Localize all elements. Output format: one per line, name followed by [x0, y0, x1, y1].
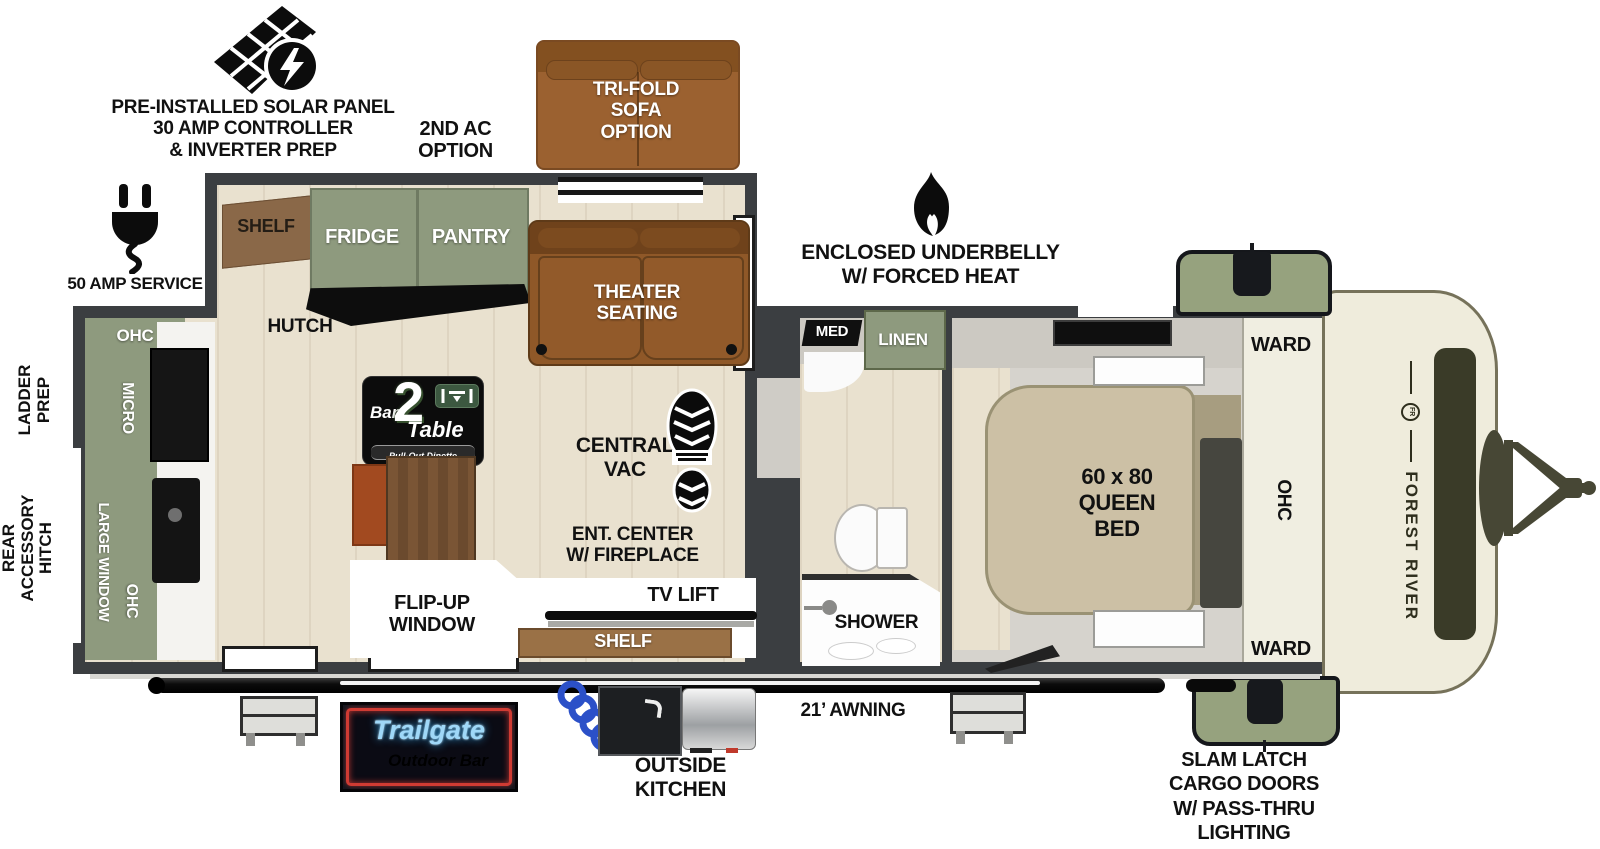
outside-kitchen-tank — [682, 688, 756, 750]
dinette-table — [386, 456, 476, 566]
pantry-label: PANTRY — [417, 226, 525, 248]
bar2table-table: Table — [407, 417, 464, 443]
awning-label: 21’ AWNING — [788, 700, 918, 721]
rear-hitch-line3: HITCH — [37, 473, 56, 623]
bed-line3: BED — [1037, 516, 1197, 542]
theater-label: THEATER SEATING — [528, 282, 746, 325]
trailgate-logo: Trailgate Outdoor Bar — [340, 702, 518, 792]
slam-latch-line2: CARGO DOORS — [1153, 772, 1335, 796]
solar-callout: PRE-INSTALLED SOLAR PANEL 30 AMP CONTROL… — [88, 97, 418, 161]
tv-lift-label: TV LIFT — [628, 584, 738, 606]
ward-bottom-label: WARD — [1248, 638, 1314, 660]
front-brand-label: FOREST RIVER — [1402, 471, 1421, 621]
trailgate-name: Trailgate — [343, 715, 515, 746]
flame-icon — [906, 170, 956, 238]
linen-label: LINEN — [864, 330, 942, 349]
tri-fold-label: TRI-FOLD SOFA OPTION — [536, 79, 736, 143]
flip-up-line2: WINDOW — [372, 614, 492, 636]
micro-label: MICRO — [118, 368, 136, 448]
slam-latch-line3: W/ PASS-THRU — [1153, 797, 1335, 821]
outside-kitchen-unit — [598, 686, 682, 756]
ent-center-label: ENT. CENTER W/ FIREPLACE — [540, 524, 725, 567]
solar-line3: & INVERTER PREP — [88, 140, 418, 161]
ent-center-line1: ENT. CENTER — [540, 524, 725, 545]
rear-step — [240, 696, 318, 736]
outside-kitchen-line2: KITCHEN — [608, 778, 753, 802]
bedding-dark — [1200, 438, 1242, 608]
rear-hitch-line2: ACCESSORY — [19, 473, 38, 623]
ohc-top-label: OHC — [95, 326, 175, 345]
fridge-label: FRIDGE — [310, 226, 414, 248]
underbelly-callout: ENCLOSED UNDERBELLY W/ FORCED HEAT — [763, 241, 1098, 288]
bedroom-top-window — [1078, 306, 1173, 317]
solar-line1: PRE-INSTALLED SOLAR PANEL — [88, 97, 418, 118]
cargo-latch-top — [1233, 252, 1271, 296]
ladder-prep-label: LADDER PREP — [16, 345, 56, 455]
rear-hitch-label: REAR ACCESSORY HITCH — [0, 473, 60, 623]
brand-dash — [1410, 361, 1412, 394]
ent-center-line2: W/ FIREPLACE — [540, 545, 725, 566]
microwave — [150, 348, 209, 462]
tank-base — [690, 748, 712, 753]
step-leg — [246, 733, 255, 746]
hutch-label: HUTCH — [250, 316, 350, 337]
bar2table-logo: Bar 2 Table Pull-Out Dinette — [362, 376, 484, 466]
ladder-prep-line2: PREP — [35, 345, 54, 455]
rear-hitch-line1: REAR — [0, 473, 19, 623]
bath-door-gap — [757, 378, 800, 478]
awning-rail-highlight — [340, 681, 1040, 685]
ward-top-label: WARD — [1248, 334, 1314, 356]
tri-fold-line3: OPTION — [536, 122, 736, 143]
flip-up-window-label: FLIP-UP WINDOW — [372, 592, 492, 637]
second-ac-line2: OPTION — [398, 140, 513, 162]
living-bottom-window-left — [222, 646, 318, 672]
fr-logo-icon: FR — [1402, 403, 1421, 421]
front-brand-row: FR FOREST RIVER — [1400, 361, 1422, 621]
shower-towel — [828, 642, 874, 660]
rear-large-window — [71, 448, 81, 643]
entry-step — [950, 692, 1026, 734]
sink-drain — [168, 508, 182, 522]
ladder-prep-line1: LADDER — [16, 345, 35, 455]
nightstand-top — [1093, 356, 1205, 386]
large-window-label: LARGE WINDOW — [93, 487, 111, 637]
shelf-label: SHELF — [222, 216, 310, 236]
sofa-pillow — [546, 60, 638, 80]
floor-plan-page: PRE-INSTALLED SOLAR PANEL 30 AMP CONTROL… — [0, 0, 1600, 849]
underbelly-line2: W/ FORCED HEAT — [763, 265, 1098, 289]
ohc-bedroom-label: OHC — [1273, 470, 1293, 530]
sofa-pillow — [640, 60, 732, 80]
living-top-window — [558, 177, 703, 203]
shower-towel — [876, 638, 916, 654]
step-leg — [956, 731, 965, 744]
solar-panel-icon — [200, 2, 328, 96]
step-leg — [1004, 731, 1013, 744]
cupholder — [536, 344, 547, 355]
front-window — [1434, 348, 1476, 640]
tv-lift-shadow — [548, 621, 754, 627]
tri-fold-line1: TRI-FOLD — [536, 79, 736, 100]
pull-out-dinette-icon — [435, 384, 479, 408]
awning-arm — [1186, 679, 1236, 692]
second-ac-callout: 2ND AC OPTION — [398, 118, 513, 163]
toilet-tank — [876, 507, 908, 569]
step-slat — [953, 711, 1023, 714]
queen-bed-label: 60 x 80 QUEEN BED — [1037, 464, 1197, 542]
tank-valve — [726, 748, 738, 753]
outside-kitchen-line1: OUTSIDE — [608, 754, 753, 778]
theater-line1: THEATER — [528, 282, 746, 303]
slam-latch-line4: LIGHTING — [1153, 821, 1335, 845]
shower-arm — [804, 606, 822, 610]
kitchen-sink — [152, 478, 200, 583]
tri-fold-line2: SOFA — [536, 100, 736, 121]
step-slat — [243, 714, 315, 717]
second-ac-line1: 2ND AC — [398, 118, 513, 140]
ceiling-vent — [1053, 320, 1172, 346]
boot-print-icon — [666, 388, 718, 514]
med-label: MED — [804, 324, 860, 341]
awning-rail-cap — [148, 677, 165, 694]
bed-line2: QUEEN — [1037, 490, 1197, 516]
shower-label: SHOWER — [824, 612, 929, 633]
theater-pillow — [640, 228, 740, 248]
ohc-side-label: OHC — [122, 578, 140, 624]
slam-latch-line1: SLAM LATCH — [1153, 748, 1335, 772]
cargo-latch-bottom — [1247, 678, 1283, 724]
step-leg — [296, 733, 305, 746]
nightstand-bottom — [1093, 610, 1205, 648]
power-plug-icon — [102, 182, 168, 274]
theater-pillow — [538, 228, 638, 248]
trailgate-tagline: Outdoor Bar — [373, 751, 503, 771]
bed-line1: 60 x 80 — [1037, 464, 1197, 490]
solar-line2: 30 AMP CONTROLLER — [88, 118, 418, 139]
brand-dash — [1410, 430, 1412, 463]
hitch-icon — [1478, 418, 1596, 558]
tv-lift-tv — [545, 611, 757, 620]
cargo-latch-stem — [1250, 243, 1254, 252]
cupholder — [726, 344, 737, 355]
outside-kitchen-label: OUTSIDE KITCHEN — [608, 754, 753, 801]
theater-line2: SEATING — [528, 303, 746, 324]
slam-latch-callout: SLAM LATCH CARGO DOORS W/ PASS-THRU LIGH… — [1153, 748, 1335, 846]
flip-up-line1: FLIP-UP — [372, 592, 492, 614]
lower-shelf-label: SHELF — [518, 631, 728, 651]
underbelly-line1: ENCLOSED UNDERBELLY — [763, 241, 1098, 265]
amp-service-label: 50 AMP SERVICE — [45, 274, 225, 293]
